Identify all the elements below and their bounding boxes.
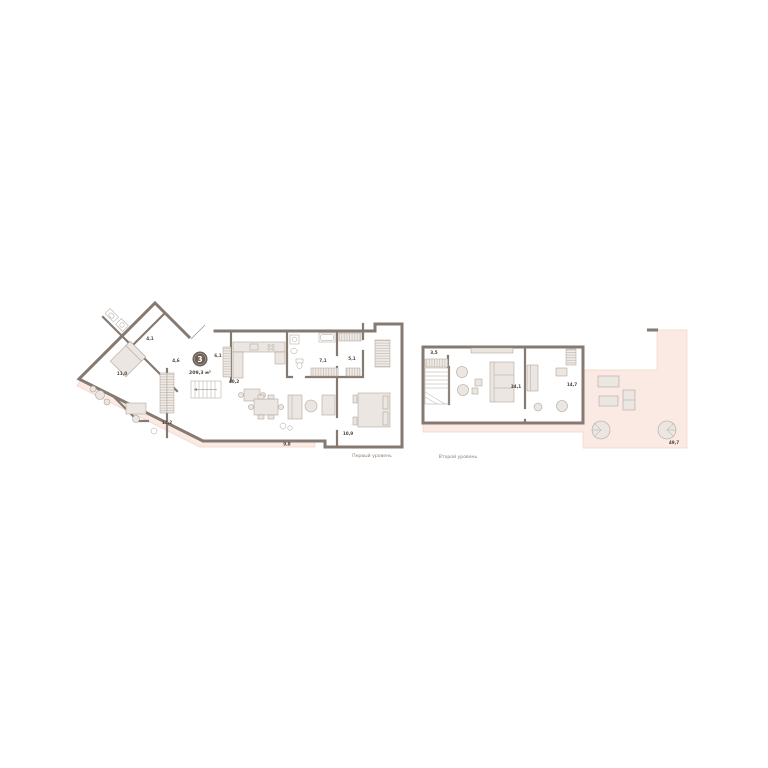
tv-console <box>471 348 513 353</box>
plant <box>288 426 292 430</box>
room-furniture <box>527 349 576 412</box>
total-area-label: 209,3 м² <box>189 370 211 376</box>
room-area-label: 11,0 <box>117 371 127 376</box>
level1-stairs <box>191 381 221 398</box>
kitchen-counter-side <box>233 352 243 378</box>
room-area-label: 40,2 <box>229 379 239 384</box>
armchair <box>457 367 468 378</box>
dining-table <box>254 399 278 415</box>
room-area-label: 10,9 <box>343 431 353 436</box>
plant <box>280 423 286 429</box>
room-area-label: 4,1 <box>146 336 154 341</box>
plant <box>151 428 157 434</box>
room-area-label: 3,5 <box>430 350 438 355</box>
armchair <box>322 395 335 415</box>
level1-caption: Первый уровень <box>352 452 392 459</box>
chair <box>90 386 96 392</box>
kitchen-counter <box>233 342 285 352</box>
armchair <box>458 385 469 396</box>
terrace-area-label: 49,7 <box>669 440 679 445</box>
sofa <box>527 365 538 391</box>
level2-caption: Второй уровень <box>439 453 478 460</box>
nightstand <box>353 417 357 425</box>
chair <box>104 399 110 405</box>
desk <box>126 403 146 414</box>
storage-closet <box>425 359 448 367</box>
room-area-label: 14,7 <box>567 382 577 387</box>
desk-chair <box>133 416 140 423</box>
level1-drawing: 3 209,3 м² 4,1 11,0 4,6 6,1 40,2 7,1 5,1… <box>70 295 415 475</box>
rooms-badge-number: 3 <box>197 355 202 364</box>
sofa <box>288 395 302 419</box>
side-table <box>475 379 482 386</box>
sofa <box>490 362 514 402</box>
outdoor-sofa <box>599 396 618 406</box>
nightstand <box>353 395 357 403</box>
armchair <box>557 401 568 412</box>
level2-stairs <box>425 368 449 404</box>
entrance-door-line <box>191 325 205 339</box>
fridge <box>275 352 285 364</box>
room-area-label: 6,1 <box>214 353 222 358</box>
sink <box>291 348 297 353</box>
room-area-label: 11,2 <box>162 420 172 425</box>
bedroom-furniture <box>353 393 390 427</box>
bathroom-fixtures <box>290 333 335 369</box>
room-area-label: 7,1 <box>319 358 327 363</box>
level2-plan: 3,5 34,1 14,7 49,7 Второй уровень <box>415 320 705 465</box>
room-area-label: 34,1 <box>511 384 521 389</box>
pillow <box>383 412 388 425</box>
level1-plan: 3 209,3 м² 4,1 11,0 4,6 6,1 40,2 7,1 5,1… <box>70 295 415 475</box>
round-table <box>96 391 105 400</box>
room-area-label: 5,1 <box>348 356 356 361</box>
coffee-table <box>305 400 317 412</box>
floor-plans-canvas: 3 209,3 м² 4,1 11,0 4,6 6,1 40,2 7,1 5,1… <box>0 0 768 768</box>
living-furniture <box>457 348 515 402</box>
room-area-label: 4,6 <box>172 358 180 363</box>
pillow <box>383 396 388 409</box>
outdoor-sofa <box>598 376 619 387</box>
living-furniture <box>280 395 335 430</box>
coffee-table <box>534 403 542 411</box>
lounge-chair <box>658 421 676 439</box>
wc-fixtures <box>105 309 128 332</box>
side-table <box>472 388 478 394</box>
wardrobe <box>566 349 576 365</box>
terrace-area-label: 9,8 <box>283 442 291 447</box>
kitchen-furniture <box>233 342 285 401</box>
rooms-badge: 3 <box>193 352 208 367</box>
desk <box>556 368 567 376</box>
stool <box>239 393 244 398</box>
level2-drawing: 3,5 34,1 14,7 49,7 Второй уровень <box>415 320 705 465</box>
lounge-chair <box>592 421 610 439</box>
